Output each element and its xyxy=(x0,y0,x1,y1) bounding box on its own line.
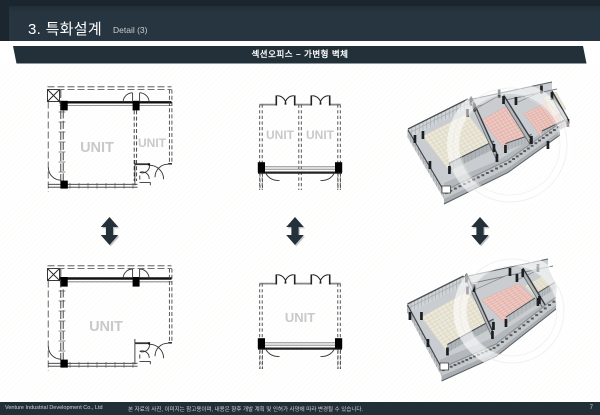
svg-text:UNIT: UNIT xyxy=(266,128,295,142)
svg-text:UNIT: UNIT xyxy=(306,128,335,142)
svg-text:UNIT: UNIT xyxy=(285,310,315,325)
svg-text:UNIT: UNIT xyxy=(80,140,114,156)
svg-text:UNIT: UNIT xyxy=(89,319,123,335)
svg-text:UNIT: UNIT xyxy=(138,136,167,150)
